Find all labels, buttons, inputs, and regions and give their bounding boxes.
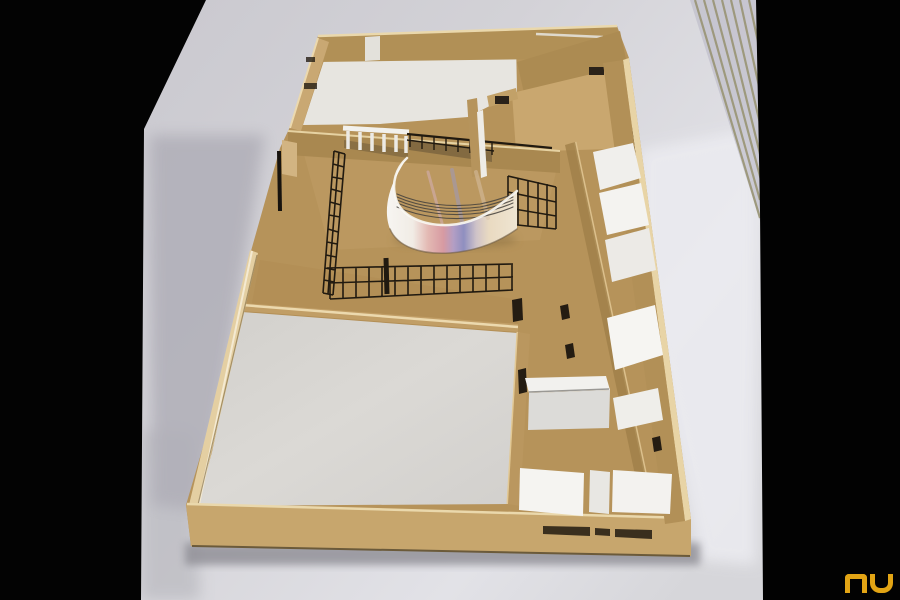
gray-block bbox=[525, 376, 610, 430]
back-wall-notch bbox=[365, 36, 380, 61]
terrace-floor bbox=[197, 312, 518, 506]
nu-logo-label: NU bbox=[843, 570, 844, 571]
window-slot bbox=[595, 528, 610, 536]
letterbox-right bbox=[756, 0, 900, 600]
model-photo-canvas bbox=[0, 0, 900, 600]
nu-logo-u-glyph bbox=[870, 574, 893, 593]
nu-logo-watermark: NU bbox=[843, 570, 895, 598]
gate-post bbox=[386, 258, 387, 294]
wall-slot bbox=[589, 67, 604, 75]
photo-architectural-model: NU bbox=[0, 0, 900, 600]
wall-slot bbox=[495, 96, 509, 104]
nu-logo-n-glyph bbox=[845, 574, 867, 593]
